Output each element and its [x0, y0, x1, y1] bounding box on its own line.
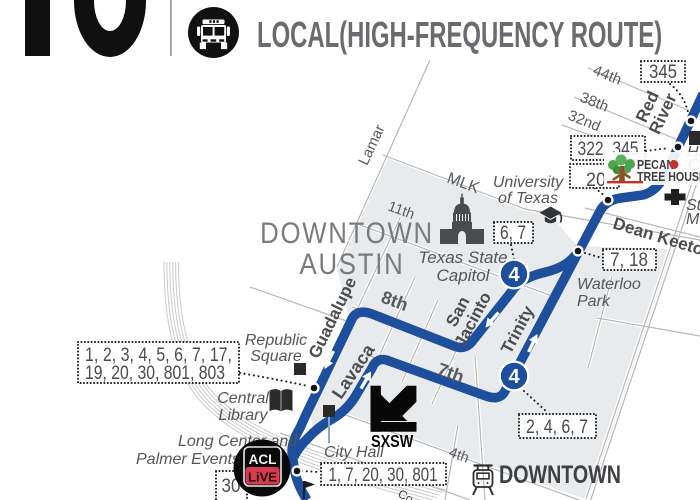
svg-text:LiVE: LiVE — [248, 470, 277, 485]
svg-text:LOCAL(HIGH-FREQUENCY ROUTE): LOCAL(HIGH-FREQUENCY ROUTE) — [257, 15, 662, 55]
svg-text:6, 7: 6, 7 — [500, 223, 526, 244]
svg-text:of Texas: of Texas — [498, 190, 558, 207]
svg-text:SXSW: SXSW — [371, 433, 414, 452]
svg-text:AUSTIN: AUSTIN — [300, 247, 405, 280]
svg-text:University: University — [493, 174, 564, 191]
svg-text:Library: Library — [219, 407, 269, 424]
svg-text:Central: Central — [217, 390, 269, 407]
svg-text:Capitol: Capitol — [437, 266, 491, 285]
svg-text:345: 345 — [649, 62, 677, 83]
svg-text:4: 4 — [508, 264, 520, 286]
svg-text:DOWNTOWN: DOWNTOWN — [499, 461, 621, 489]
svg-text:20: 20 — [586, 170, 606, 191]
svg-text:19, 20, 30, 801, 803: 19, 20, 30, 801, 803 — [85, 363, 225, 384]
svg-text:Waterloo: Waterloo — [577, 276, 641, 293]
svg-text:DOWNTOWN: DOWNTOWN — [260, 216, 434, 249]
svg-text:1, 7, 20, 30, 801: 1, 7, 20, 30, 801 — [329, 465, 438, 486]
svg-text:Texas State: Texas State — [418, 248, 507, 267]
svg-text:7, 18: 7, 18 — [610, 250, 648, 271]
svg-text:TREE HOUSE: TREE HOUSE — [637, 170, 700, 184]
svg-text:Me: Me — [686, 211, 700, 228]
svg-text:2, 4, 6, 7: 2, 4, 6, 7 — [526, 417, 588, 438]
svg-text:Park: Park — [577, 293, 611, 310]
svg-text:Square: Square — [250, 348, 302, 365]
svg-text:4: 4 — [508, 366, 520, 388]
svg-text:ACL: ACL — [249, 452, 277, 467]
svg-text:Republic: Republic — [245, 332, 307, 349]
